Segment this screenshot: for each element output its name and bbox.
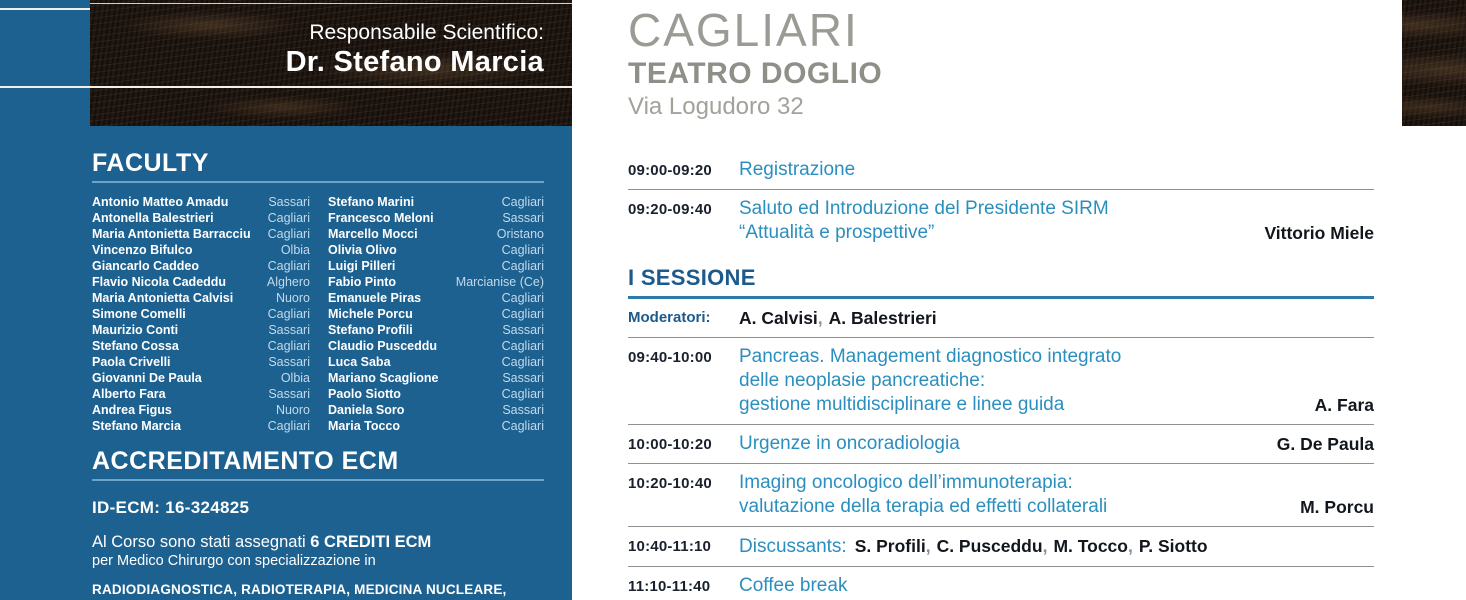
faculty-row: Marcello Mocci Oristano — [328, 226, 544, 242]
schedule: 09:00-09:20 Registrazione 09:20-09:40 Sa… — [628, 151, 1374, 600]
faculty-city: Alghero — [267, 274, 310, 290]
ecm-specialties-line-1: RADIODIAGNOSTICA, RADIOTERAPIA, MEDICINA… — [92, 582, 544, 598]
faculty-city: Cagliari — [502, 194, 544, 210]
program-page: Responsabile Scientifico: Dr. Stefano Ma… — [0, 0, 1466, 600]
faculty-name: Emanuele Piras — [328, 290, 421, 306]
faculty-row: Giancarlo Caddeo Cagliari — [92, 258, 310, 274]
left-panel: Responsabile Scientifico: Dr. Stefano Ma… — [0, 0, 572, 600]
schedule-row-discussants: 10:40-11:10 Discussants:S. Profili,C. Pu… — [628, 527, 1374, 566]
faculty-row: Vincenzo Bifulco Olbia — [92, 242, 310, 258]
faculty-columns: Antonio Matteo Amadu Sassari Antonella B… — [92, 194, 544, 434]
faculty-name: Paolo Siotto — [328, 386, 401, 402]
faculty-name: Stefano Profili — [328, 322, 413, 338]
faculty-row: Luigi Pilleri Cagliari — [328, 258, 544, 274]
faculty-name: Flavio Nicola Cadeddu — [92, 274, 226, 290]
faculty-row: Emanuele Piras Cagliari — [328, 290, 544, 306]
faculty-name: Paola Crivelli — [92, 354, 171, 370]
discussant-name: S. Profili — [855, 536, 926, 556]
faculty-row: Fabio Pinto Marcianise (Ce) — [328, 274, 544, 290]
row-speaker: G. De Paula — [1277, 432, 1374, 456]
faculty-row: Paolo Siotto Cagliari — [328, 386, 544, 402]
name-separator: , — [1128, 536, 1133, 556]
faculty-city: Cagliari — [502, 386, 544, 402]
ecm-id: ID-ECM: 16-324825 — [92, 498, 544, 518]
faculty-name: Vincenzo Bifulco — [92, 242, 192, 258]
row-title: Imaging oncologico dell’immunoterapia: v… — [739, 471, 1300, 519]
schedule-row-pancreas: 09:40-10:00 Pancreas. Management diagnos… — [628, 338, 1374, 424]
faculty-name: Mariano Scaglione — [328, 370, 438, 386]
faculty-city: Cagliari — [502, 258, 544, 274]
faculty-city: Sassari — [268, 194, 310, 210]
discussant-name: M. Tocco — [1053, 536, 1128, 556]
venue-name: TEATRO DOGLIO — [628, 56, 1374, 92]
discussants-line: Discussants:S. Profili,C. Pusceddu,M. To… — [739, 534, 1374, 559]
session-1-heading: I SESSIONE — [628, 265, 1374, 291]
faculty-row: Stefano Profili Sassari — [328, 322, 544, 338]
faculty-row: Paola Crivelli Sassari — [92, 354, 310, 370]
name-separator: , — [926, 536, 931, 556]
row-title: Saluto ed Introduzione del Presidente SI… — [739, 197, 1264, 245]
faculty-name: Daniela Soro — [328, 402, 404, 418]
faculty-city: Olbia — [281, 242, 310, 258]
faculty-name: Maurizio Conti — [92, 322, 178, 338]
faculty-city: Sassari — [502, 402, 544, 418]
row-title-line: gestione multidisciplinare e linee guida — [739, 393, 1315, 417]
ecm-credits-bold: 6 CREDITI ECM — [310, 533, 431, 551]
faculty-name: Stefano Cossa — [92, 338, 179, 354]
discussant-name: P. Siotto — [1139, 536, 1208, 556]
venue-header: CAGLIARI TEATRO DOGLIO Via Logudoro 32 — [628, 4, 1374, 122]
faculty-name: Stefano Marcia — [92, 418, 181, 434]
hero-top-divider — [90, 3, 572, 4]
moderators-names: A. Calvisi,A. Balestrieri — [739, 306, 937, 330]
scientific-lead-label: Responsabile Scientifico: — [286, 19, 544, 46]
faculty-name: Luca Saba — [328, 354, 391, 370]
row-title: Pancreas. Management diagnostico integra… — [739, 345, 1315, 417]
faculty-city: Marcianise (Ce) — [456, 274, 544, 290]
faculty-row: Alberto Fara Sassari — [92, 386, 310, 402]
faculty-row: Antonella Balestrieri Cagliari — [92, 210, 310, 226]
faculty-name: Luigi Pilleri — [328, 258, 395, 274]
faculty-name: Giovanni De Paula — [92, 370, 202, 386]
row-time: 09:00-09:20 — [628, 158, 739, 182]
faculty-row: Michele Porcu Cagliari — [328, 306, 544, 322]
faculty-city: Cagliari — [502, 306, 544, 322]
faculty-city: Cagliari — [268, 210, 310, 226]
faculty-row: Maria Antonietta Barracciu Cagliari — [92, 226, 310, 242]
faculty-city: Cagliari — [268, 338, 310, 354]
faculty-row: Claudio Pusceddu Cagliari — [328, 338, 544, 354]
faculty-city: Cagliari — [268, 258, 310, 274]
row-time: 09:40-10:00 — [628, 345, 739, 417]
ecm-credits-sub: per Medico Chirurgo con specializzazione… — [92, 553, 544, 569]
faculty-city: Oristano — [497, 226, 544, 242]
faculty-city: Sassari — [268, 386, 310, 402]
row-title-line: Saluto ed Introduzione del Presidente SI… — [739, 197, 1264, 221]
row-title: Urgenze in oncoradiologia — [739, 432, 1277, 456]
scientific-lead-block: Responsabile Scientifico: Dr. Stefano Ma… — [286, 19, 544, 79]
corner-rock-image — [1402, 0, 1466, 126]
venue-address: Via Logudoro 32 — [628, 92, 1374, 122]
schedule-row-urgenze: 10:00-10:20 Urgenze in oncoradiologia G.… — [628, 425, 1374, 463]
ecm-credits-prefix: Al Corso sono stati assegnati — [92, 533, 310, 551]
row-time: 10:00-10:20 — [628, 432, 739, 456]
faculty-name: Andrea Figus — [92, 402, 172, 418]
hero-rock-image: Responsabile Scientifico: Dr. Stefano Ma… — [90, 0, 572, 126]
row-speaker: A. Fara — [1315, 393, 1374, 417]
faculty-city: Cagliari — [268, 306, 310, 322]
faculty-name: Marcello Mocci — [328, 226, 418, 242]
faculty-row: Maria Antonietta Calvisi Nuoro — [92, 290, 310, 306]
discussants-label: Discussants: — [739, 536, 847, 557]
row-time: 11:10-11:40 — [628, 574, 739, 598]
row-title-line: Imaging oncologico dell’immunoterapia: — [739, 471, 1300, 495]
faculty-name: Fabio Pinto — [328, 274, 396, 290]
faculty-city: Cagliari — [268, 418, 310, 434]
ecm-heading: ACCREDITAMENTO ECM — [92, 448, 544, 475]
faculty-row: Maurizio Conti Sassari — [92, 322, 310, 338]
faculty-row: Stefano Marini Cagliari — [328, 194, 544, 210]
discussants-names: S. Profili,C. Pusceddu,M. Tocco,P. Siott… — [855, 536, 1208, 556]
moderators-row: Moderatori: A. Calvisi,A. Balestrieri — [628, 299, 1374, 337]
faculty-row: Giovanni De Paula Olbia — [92, 370, 310, 386]
faculty-name: Maria Antonietta Calvisi — [92, 290, 233, 306]
schedule-row-registration: 09:00-09:20 Registrazione — [628, 151, 1374, 189]
faculty-name: Stefano Marini — [328, 194, 414, 210]
faculty-city: Sassari — [268, 354, 310, 370]
faculty-city: Sassari — [268, 322, 310, 338]
venue-city: CAGLIARI — [628, 4, 1374, 56]
faculty-underline — [92, 181, 544, 183]
faculty-city: Sassari — [502, 322, 544, 338]
row-time: 10:20-10:40 — [628, 471, 739, 519]
faculty-name: Maria Antonietta Barracciu — [92, 226, 251, 242]
schedule-row-imaging: 10:20-10:40 Imaging oncologico dell’immu… — [628, 464, 1374, 526]
faculty-name: Simone Comelli — [92, 306, 186, 322]
faculty-row: Simone Comelli Cagliari — [92, 306, 310, 322]
faculty-city: Cagliari — [502, 338, 544, 354]
row-title-line: Pancreas. Management diagnostico integra… — [739, 345, 1315, 369]
faculty-city: Sassari — [502, 370, 544, 386]
moderator-name: A. Calvisi — [739, 308, 818, 328]
program-column: CAGLIARI TEATRO DOGLIO Via Logudoro 32 0… — [628, 0, 1374, 600]
faculty-row: Antonio Matteo Amadu Sassari — [92, 194, 310, 210]
faculty-row: Stefano Cossa Cagliari — [92, 338, 310, 354]
faculty-name: Francesco Meloni — [328, 210, 434, 226]
schedule-row-opening: 09:20-09:40 Saluto ed Introduzione del P… — [628, 190, 1374, 252]
row-time: 10:40-11:10 — [628, 534, 739, 559]
row-title-line: delle neoplasie pancreatiche: — [739, 369, 1315, 393]
ecm-underline — [92, 479, 544, 481]
top-divider-short — [0, 8, 90, 10]
row-title-line: valutazione della terapia ed effetti col… — [739, 495, 1300, 519]
faculty-row: Maria Tocco Cagliari — [328, 418, 544, 434]
ecm-credits-line: Al Corso sono stati assegnati 6 CREDITI … — [92, 533, 544, 552]
moderators-label: Moderatori: — [628, 306, 739, 330]
faculty-row: Daniela Soro Sassari — [328, 402, 544, 418]
name-separator: , — [1043, 536, 1048, 556]
faculty-city: Olbia — [281, 370, 310, 386]
row-title-line: “Attualità e prospettive” — [739, 221, 1264, 245]
faculty-heading: FACULTY — [92, 150, 544, 177]
moderator-name: A. Balestrieri — [829, 308, 937, 328]
faculty-city: Cagliari — [502, 354, 544, 370]
row-speaker: M. Porcu — [1300, 495, 1374, 519]
faculty-name: Michele Porcu — [328, 306, 413, 322]
ecm-section: ACCREDITAMENTO ECM ID-ECM: 16-324825 Al … — [92, 448, 544, 600]
row-title: Registrazione — [739, 158, 1374, 182]
faculty-row: Mariano Scaglione Sassari — [328, 370, 544, 386]
faculty-name: Antonio Matteo Amadu — [92, 194, 228, 210]
faculty-row: Flavio Nicola Cadeddu Alghero — [92, 274, 310, 290]
faculty-city: Nuoro — [276, 402, 310, 418]
name-separator: , — [818, 308, 823, 328]
faculty-name: Maria Tocco — [328, 418, 400, 434]
row-speaker: Vittorio Miele — [1264, 221, 1374, 245]
faculty-name: Claudio Pusceddu — [328, 338, 437, 354]
faculty-column-1: Antonio Matteo Amadu Sassari Antonella B… — [92, 194, 310, 434]
faculty-column-2: Stefano Marini Cagliari Francesco Meloni… — [328, 194, 544, 434]
faculty-section: FACULTY Antonio Matteo Amadu Sassari Ant… — [92, 150, 544, 434]
row-time: 09:20-09:40 — [628, 197, 739, 245]
faculty-name: Antonella Balestrieri — [92, 210, 214, 226]
faculty-city: Sassari — [502, 210, 544, 226]
faculty-city: Cagliari — [502, 242, 544, 258]
faculty-row: Olivia Olivo Cagliari — [328, 242, 544, 258]
faculty-city: Cagliari — [502, 418, 544, 434]
faculty-city: Cagliari — [268, 226, 310, 242]
ecm-specialties: RADIODIAGNOSTICA, RADIOTERAPIA, MEDICINA… — [92, 582, 544, 600]
schedule-row-coffee: 11:10-11:40 Coffee break — [628, 567, 1374, 600]
faculty-name: Giancarlo Caddeo — [92, 258, 199, 274]
faculty-name: Olivia Olivo — [328, 242, 397, 258]
faculty-name: Alberto Fara — [92, 386, 166, 402]
faculty-row: Luca Saba Cagliari — [328, 354, 544, 370]
scientific-lead-name: Dr. Stefano Marcia — [286, 46, 544, 79]
faculty-row: Stefano Marcia Cagliari — [92, 418, 310, 434]
discussant-name: C. Pusceddu — [937, 536, 1043, 556]
faculty-row: Andrea Figus Nuoro — [92, 402, 310, 418]
row-title: Coffee break — [739, 574, 1374, 598]
faculty-city: Nuoro — [276, 290, 310, 306]
hero-bottom-divider — [0, 86, 572, 88]
faculty-city: Cagliari — [502, 290, 544, 306]
faculty-row: Francesco Meloni Sassari — [328, 210, 544, 226]
